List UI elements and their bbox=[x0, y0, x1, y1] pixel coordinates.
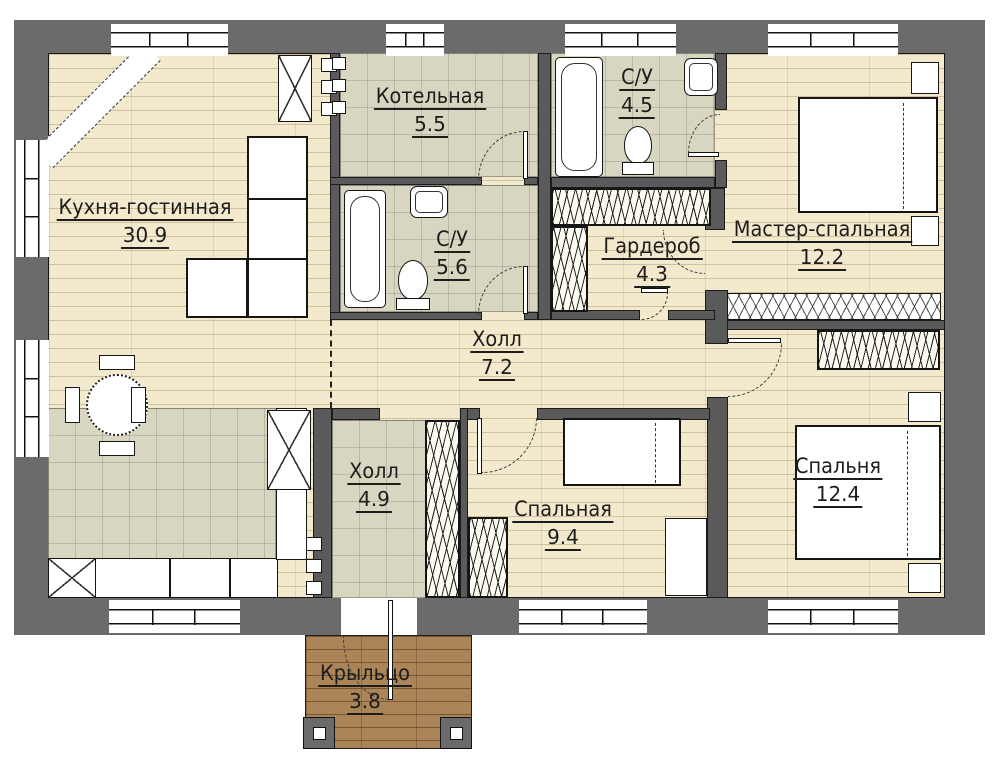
toilet-base-icon bbox=[396, 298, 430, 310]
room-label-hall-49: Холл 4.9 bbox=[345, 460, 403, 513]
bed-bedroom-94-icon bbox=[563, 418, 681, 486]
room-label-kitchen-living: Кухня-гостинная 30.9 bbox=[49, 196, 241, 249]
wall-wardrobe-bottom-right bbox=[668, 310, 715, 320]
room-name: Котельная bbox=[374, 85, 486, 110]
toilet-icon bbox=[624, 126, 652, 164]
room-area: 12.4 bbox=[814, 484, 863, 508]
window-south-3 bbox=[768, 600, 898, 633]
porch-post-icon bbox=[440, 717, 472, 749]
room-area: 7.2 bbox=[479, 357, 515, 381]
porch-post-icon bbox=[303, 717, 335, 749]
chair-icon bbox=[99, 355, 135, 370]
bed-master-icon bbox=[798, 97, 938, 213]
room-area: 5.6 bbox=[434, 257, 470, 281]
room-area: 4.3 bbox=[634, 264, 670, 288]
room-name: С/У bbox=[619, 66, 654, 91]
wall-exterior-right bbox=[945, 20, 985, 635]
counter-divider-line bbox=[169, 559, 171, 597]
chair-icon bbox=[99, 441, 135, 456]
room-name: Кухня-гостинная bbox=[57, 196, 234, 221]
toilet-base-icon bbox=[622, 162, 654, 175]
sofa-corner-icon bbox=[186, 258, 248, 318]
room-area: 12.2 bbox=[798, 247, 847, 271]
closet-bedroom-94 bbox=[468, 517, 508, 598]
zone-boundary-line bbox=[330, 320, 332, 408]
desk-icon bbox=[665, 518, 707, 596]
wall-bathroom56-bottom bbox=[330, 312, 482, 320]
wardrobe-unit-left bbox=[551, 226, 588, 312]
floor-plan: Кухня-гостинная 30.9 Котельная 5.5 С/У 5… bbox=[0, 0, 995, 768]
wall-boiler-right bbox=[538, 53, 551, 320]
room-label-bathroom-45: С/У 4.5 bbox=[618, 66, 657, 119]
bathtub-icon bbox=[344, 190, 386, 308]
cooktop-icon bbox=[48, 558, 96, 598]
room-label-master-bedroom: Мастер-спальная 12.2 bbox=[724, 218, 920, 271]
window-west-2 bbox=[16, 340, 49, 457]
window-north-2 bbox=[386, 24, 444, 56]
room-label-bedroom-124: Спальня 12.4 bbox=[789, 455, 886, 508]
room-name: С/У bbox=[434, 228, 469, 253]
kitchen-appliance-icon bbox=[306, 559, 322, 573]
counter-divider-line bbox=[229, 559, 231, 597]
sliding-wardrobe-master bbox=[727, 293, 941, 320]
sofa-cushion-line bbox=[249, 258, 306, 260]
window-south-2 bbox=[519, 600, 647, 633]
room-name: Мастер-спальная bbox=[732, 218, 912, 243]
closet-hall-49 bbox=[425, 420, 460, 598]
chair-icon bbox=[65, 387, 80, 423]
wardrobe-unit-top bbox=[551, 188, 711, 226]
room-name: Холл bbox=[470, 328, 523, 353]
window-west-1 bbox=[16, 140, 49, 257]
room-name: Спальная bbox=[512, 498, 613, 523]
wall-bathroom45-bottom bbox=[551, 177, 715, 188]
boiler-equipment-icon bbox=[332, 79, 346, 92]
room-label-porch: Крыльцо 3.8 bbox=[314, 662, 416, 715]
room-label-bedroom-94: Спальная 9.4 bbox=[508, 498, 618, 551]
room-name: Спальня bbox=[793, 455, 883, 480]
window-north-1 bbox=[111, 24, 228, 56]
kitchen-appliance-icon bbox=[306, 581, 322, 595]
kitchen-appliance-icon bbox=[306, 537, 322, 551]
wall-bedroom-divider bbox=[707, 397, 728, 598]
wall-master-bottom bbox=[727, 320, 945, 330]
room-name: Крыльцо bbox=[318, 662, 412, 687]
wall-exterior-left bbox=[14, 20, 48, 635]
room-area: 30.9 bbox=[121, 225, 170, 249]
wall-master-left-mid bbox=[715, 160, 727, 188]
bathtub-icon bbox=[555, 57, 603, 177]
room-area: 4.9 bbox=[356, 489, 392, 513]
chair-icon bbox=[131, 387, 146, 423]
kitchen-tall-cabinet-icon bbox=[278, 55, 312, 122]
nightstand-icon bbox=[908, 392, 941, 422]
room-name: Холл bbox=[347, 460, 400, 485]
sofa-icon bbox=[247, 136, 308, 318]
entrance-doorway bbox=[341, 598, 417, 635]
boiler-equipment-icon bbox=[332, 57, 346, 70]
room-label-hall-72: Холл 7.2 bbox=[468, 328, 526, 381]
window-north-3 bbox=[565, 24, 676, 56]
fridge-icon bbox=[267, 410, 311, 490]
room-label-bathroom-56: С/У 5.6 bbox=[433, 228, 472, 281]
bed-pillow-line bbox=[903, 103, 904, 209]
nightstand-icon bbox=[908, 563, 941, 593]
wall-hall49-right bbox=[460, 408, 468, 598]
room-area: 5.5 bbox=[412, 114, 448, 138]
wall-corridor-left bbox=[332, 408, 380, 420]
wall-boiler-bottom bbox=[330, 177, 482, 185]
boiler-equipment-icon bbox=[332, 101, 346, 114]
room-area: 9.4 bbox=[545, 527, 581, 551]
room-label-boiler: Котельная 5.5 bbox=[369, 85, 491, 138]
room-area: 4.5 bbox=[619, 95, 655, 119]
sofa-cushion-line bbox=[249, 198, 306, 200]
window-south-1 bbox=[109, 600, 240, 633]
sink-icon bbox=[684, 58, 718, 96]
bed-pillow-line bbox=[655, 423, 656, 483]
room-label-wardrobe: Гардероб 4.3 bbox=[597, 235, 707, 288]
sink-icon bbox=[410, 186, 448, 218]
room-area: 3.8 bbox=[347, 691, 383, 715]
bed-pillow-line bbox=[907, 431, 908, 556]
window-north-4 bbox=[768, 24, 898, 56]
nightstand-icon bbox=[911, 62, 939, 94]
toilet-icon bbox=[398, 260, 428, 300]
wardrobe-unit-bedroom-124 bbox=[817, 330, 940, 370]
room-name: Гардероб bbox=[602, 235, 703, 260]
